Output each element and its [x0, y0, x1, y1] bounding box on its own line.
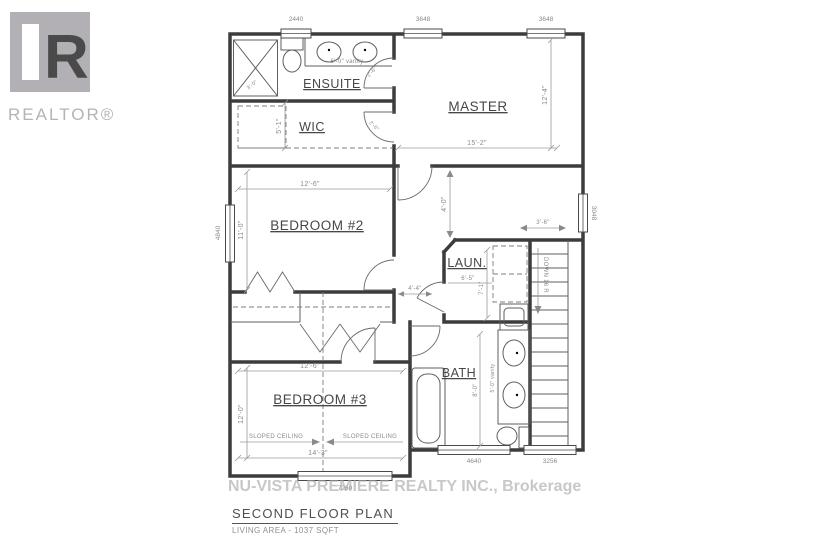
dim-arrow [447, 231, 454, 238]
sloped-arrow-right [326, 439, 334, 446]
stair-width-dim: 3'-6" [536, 220, 549, 226]
brokerage-watermark: NU-VISTA PREMIERE REALTY INC., Brokerage [228, 478, 581, 496]
bedroom3-closet-bifold [300, 324, 380, 352]
stair-treads [532, 240, 569, 450]
window-label-4840: 4840 [215, 225, 222, 240]
dim-arrow [398, 291, 404, 297]
bedroom2-label: BEDROOM #2 [270, 218, 364, 233]
ensuite-label: ENSUITE [303, 77, 361, 91]
faucet-dot [364, 49, 366, 51]
master-door [398, 166, 432, 200]
window-bedroom2-left [226, 205, 235, 262]
bath-vanity-dim: 5'-0" vanity [490, 363, 496, 392]
windows [226, 29, 588, 481]
window-label-3256: 3256 [543, 458, 558, 465]
bedroom3-label: BEDROOM #3 [273, 392, 367, 407]
hall-master-dim: 4'-0" [441, 196, 448, 212]
shower-x [234, 40, 278, 96]
bedroom2-depth-dim: 11'-0" [238, 220, 245, 239]
laundry-appliances [493, 246, 527, 302]
bath-vanity [498, 330, 530, 424]
laundry-width-dim: 6'-5" [461, 276, 474, 282]
floor-plan-page: R REALTOR® [0, 0, 815, 543]
plan-subtitle: LIVING AREA - 1037 SQFT [232, 526, 398, 535]
bath-toilet-tank [519, 427, 529, 448]
faucet-dot [328, 49, 330, 51]
faucet-dot [516, 394, 518, 396]
dim-arrow [520, 225, 527, 231]
ensuite-toilet-tank [281, 38, 303, 50]
window-label-3048: 3048 [590, 206, 597, 221]
bath-label: BATH [442, 366, 476, 380]
doors [245, 58, 444, 362]
window-master-right [527, 29, 565, 38]
master-width-dim: 15'-2" [467, 140, 487, 147]
window-label-4640: 4640 [467, 458, 482, 465]
master-label: MASTER [448, 99, 507, 114]
laundry-label: LAUN. [447, 256, 486, 270]
title-block: SECOND FLOOR PLAN LIVING AREA - 1037 SQF… [232, 505, 398, 535]
window-bath-bottom [438, 446, 510, 455]
window-master-left [404, 29, 442, 38]
window-ensuite-top [281, 29, 311, 38]
sloped-arrow-left [312, 439, 320, 446]
laundry-depth-dim: 7'-1" [479, 281, 485, 294]
window-label-3648-right: 3648 [539, 16, 554, 23]
bath-depth-dim: 8'-0" [473, 383, 479, 396]
floor-plan-drawing: ENSUITE WIC MASTER BEDROOM #2 LAUN. BATH… [0, 0, 815, 543]
stairs-down-label: DOWN 16 R [542, 257, 548, 293]
window-stairs-right [579, 194, 588, 232]
hall-width-dim: 4'-4" [408, 286, 421, 292]
faucet-dot [516, 352, 518, 354]
bedroom3-width-bottom-dim: 14'-3" [308, 450, 328, 457]
bedroom2-width-dim: 12'-6" [300, 181, 320, 188]
wic-label: WIC [299, 120, 325, 134]
ensuite-vanity-dim: 6'-0" vanity [331, 59, 364, 65]
dim-arrow [559, 225, 566, 231]
window-stairs-bottom [524, 446, 576, 455]
bath-door [410, 326, 440, 356]
sloped-ceiling-right: SLOPED CEILING [343, 434, 397, 440]
room-labels: ENSUITE WIC MASTER BEDROOM #2 LAUN. BATH… [270, 77, 507, 407]
sloped-ceiling-left: SLOPED CEILING [249, 434, 303, 440]
bath-sink-bottom [503, 382, 525, 408]
master-depth-dim: 12'-4" [542, 85, 549, 105]
shower-dim: 3'-0" [246, 79, 259, 91]
ensuite-door-dim: 2'-6" [366, 66, 379, 79]
bedroom3-depth-dim: 12'-0" [238, 404, 245, 424]
wic-door-dim: 2'-6" [367, 120, 380, 133]
window-label-2440: 2440 [289, 16, 304, 23]
bedroom2-closet-bifold [245, 272, 295, 292]
window-label-3648-left: 3648 [416, 16, 431, 23]
wic-depth-dim: 5'-1" [276, 118, 283, 134]
bedroom2-door [364, 260, 394, 290]
bedroom3-width-top-dim: 12'-6" [300, 363, 320, 370]
plan-title: SECOND FLOOR PLAN [232, 506, 398, 524]
bath-toilet-bowl [497, 427, 517, 445]
bathtub-inner [417, 374, 440, 443]
ensuite-toilet-bowl [283, 50, 301, 72]
dim-arrow [426, 291, 432, 297]
dim-arrow [447, 170, 454, 177]
bath-sink-top [503, 340, 525, 366]
